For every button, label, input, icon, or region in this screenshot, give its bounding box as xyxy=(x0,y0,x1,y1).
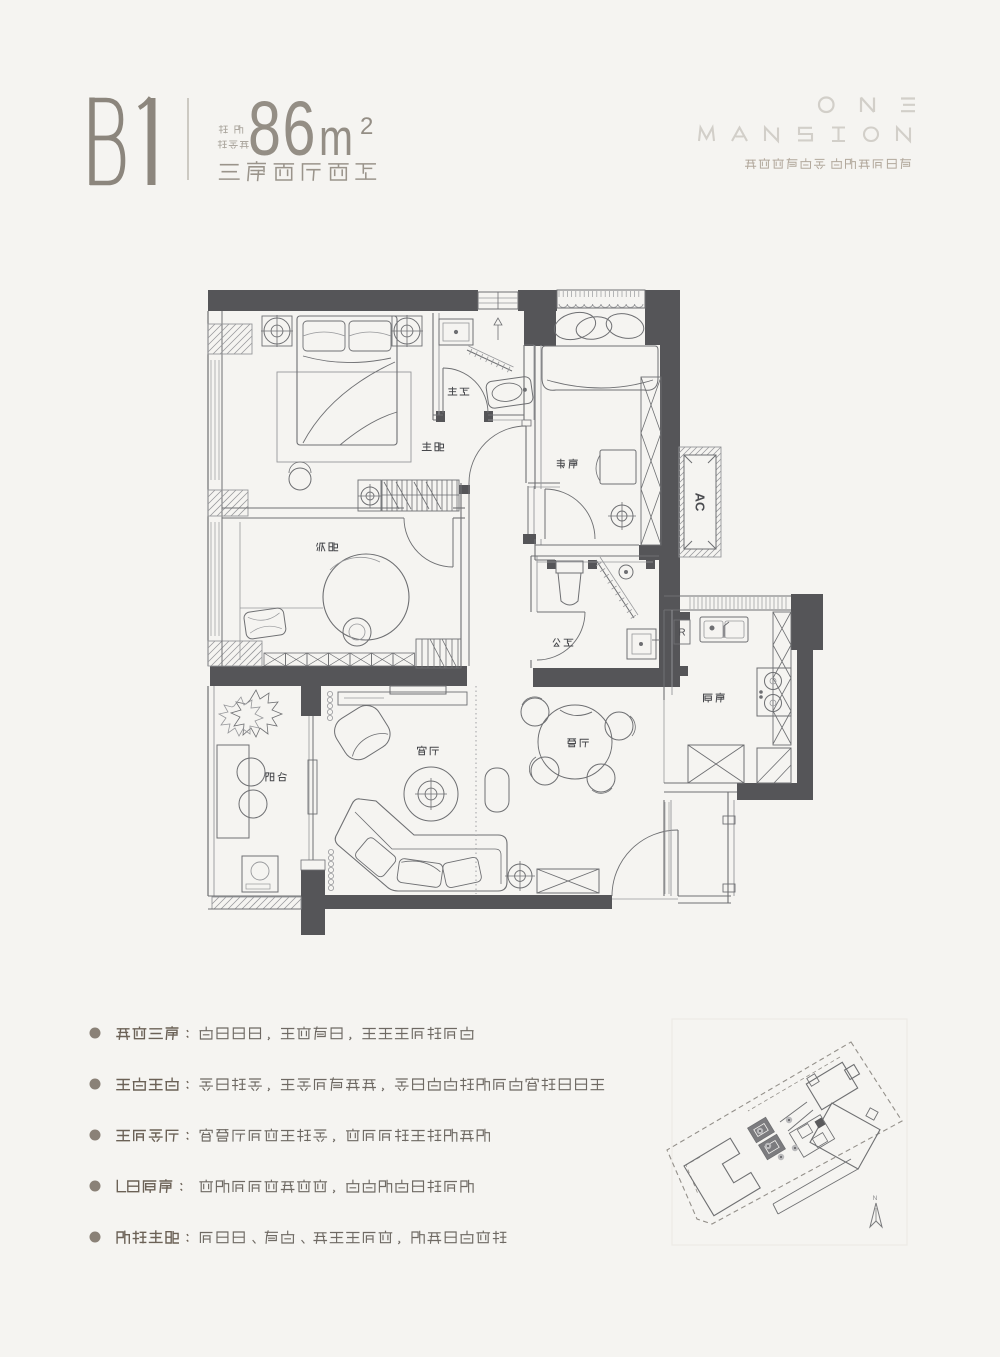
svg-text:AC: AC xyxy=(693,493,708,512)
svg-text:N: N xyxy=(873,1195,878,1202)
svg-text:86: 86 xyxy=(248,86,317,172)
svg-text:m: m xyxy=(319,109,353,166)
svg-text:R: R xyxy=(678,628,685,639)
svg-text:2: 2 xyxy=(360,113,373,140)
